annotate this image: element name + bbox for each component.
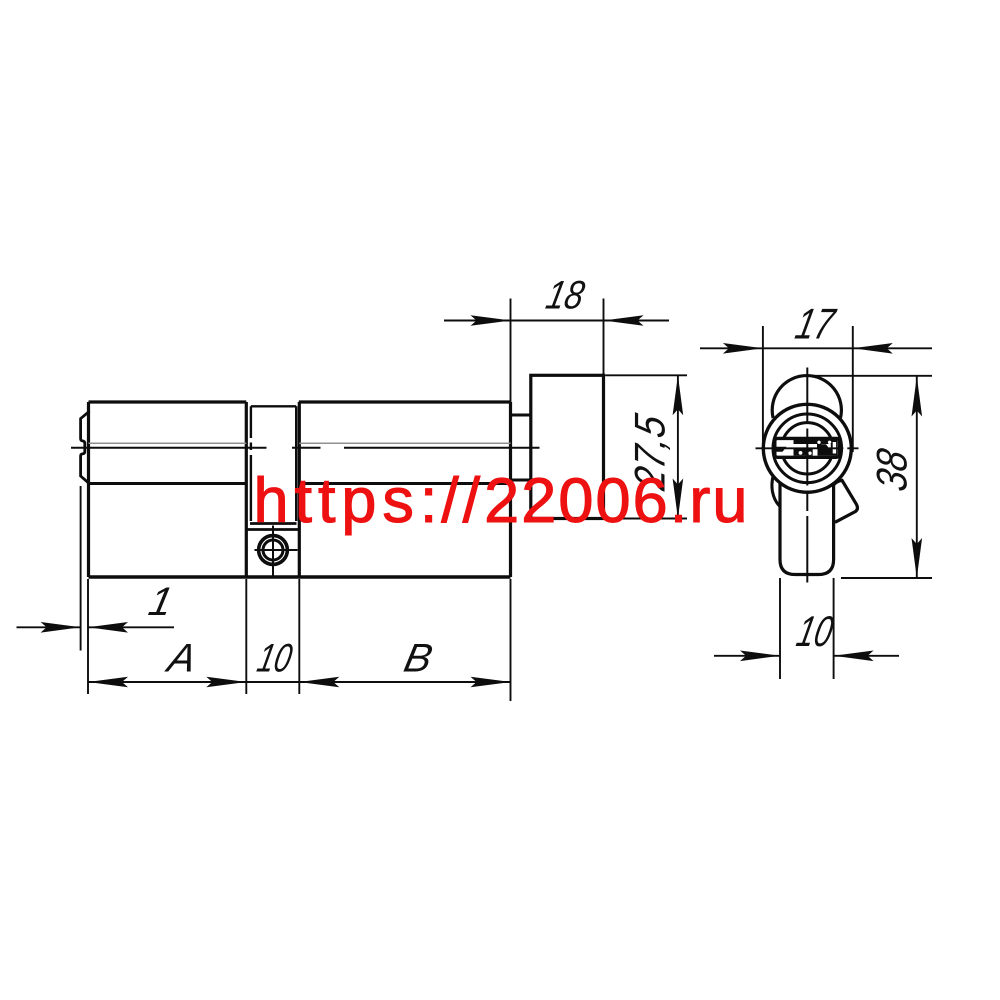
svg-text:A: A <box>162 635 200 680</box>
svg-text:10: 10 <box>254 635 297 680</box>
svg-text:10: 10 <box>793 608 838 655</box>
svg-text:1: 1 <box>145 578 177 623</box>
svg-text:38: 38 <box>869 445 916 495</box>
svg-text:17: 17 <box>791 301 839 348</box>
svg-text:B: B <box>400 635 436 680</box>
svg-text:18: 18 <box>542 272 589 317</box>
